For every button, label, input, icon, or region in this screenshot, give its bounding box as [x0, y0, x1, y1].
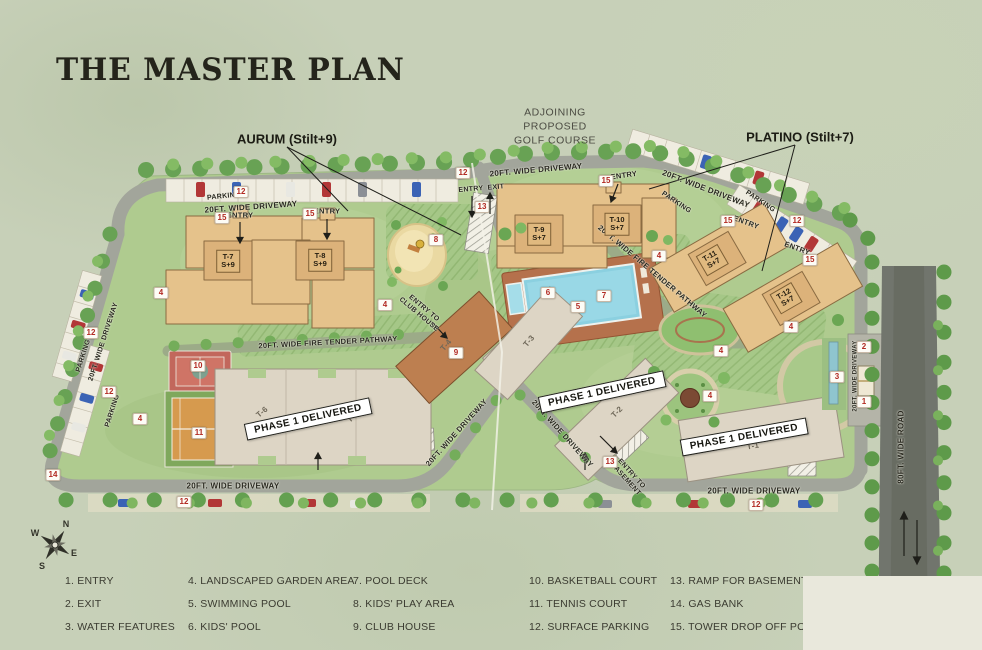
- site-plan-drawing: [0, 0, 982, 650]
- platino-callout: PLATINO (Stilt+7): [746, 130, 854, 145]
- aurum-towers: [166, 206, 374, 328]
- page-title: THE MASTER PLAN: [56, 52, 405, 88]
- water-feature: [829, 342, 838, 404]
- compass-west-label: W: [31, 528, 40, 538]
- compass-east-label: E: [71, 548, 77, 558]
- compass-south-label: S: [39, 561, 45, 571]
- kids-play-area: [388, 224, 446, 286]
- kids-pool: [506, 283, 525, 315]
- golf-course-note: ADJOINING PROPOSED GOLF COURSE: [514, 106, 596, 149]
- aurum-callout: AURUM (Stilt+9): [237, 132, 337, 147]
- blank-corner-panel: [803, 576, 982, 650]
- compass-north-label: N: [63, 519, 70, 529]
- master-plan-page: THE MASTER PLAN ADJOINING PROPOSED GOLF …: [0, 0, 982, 650]
